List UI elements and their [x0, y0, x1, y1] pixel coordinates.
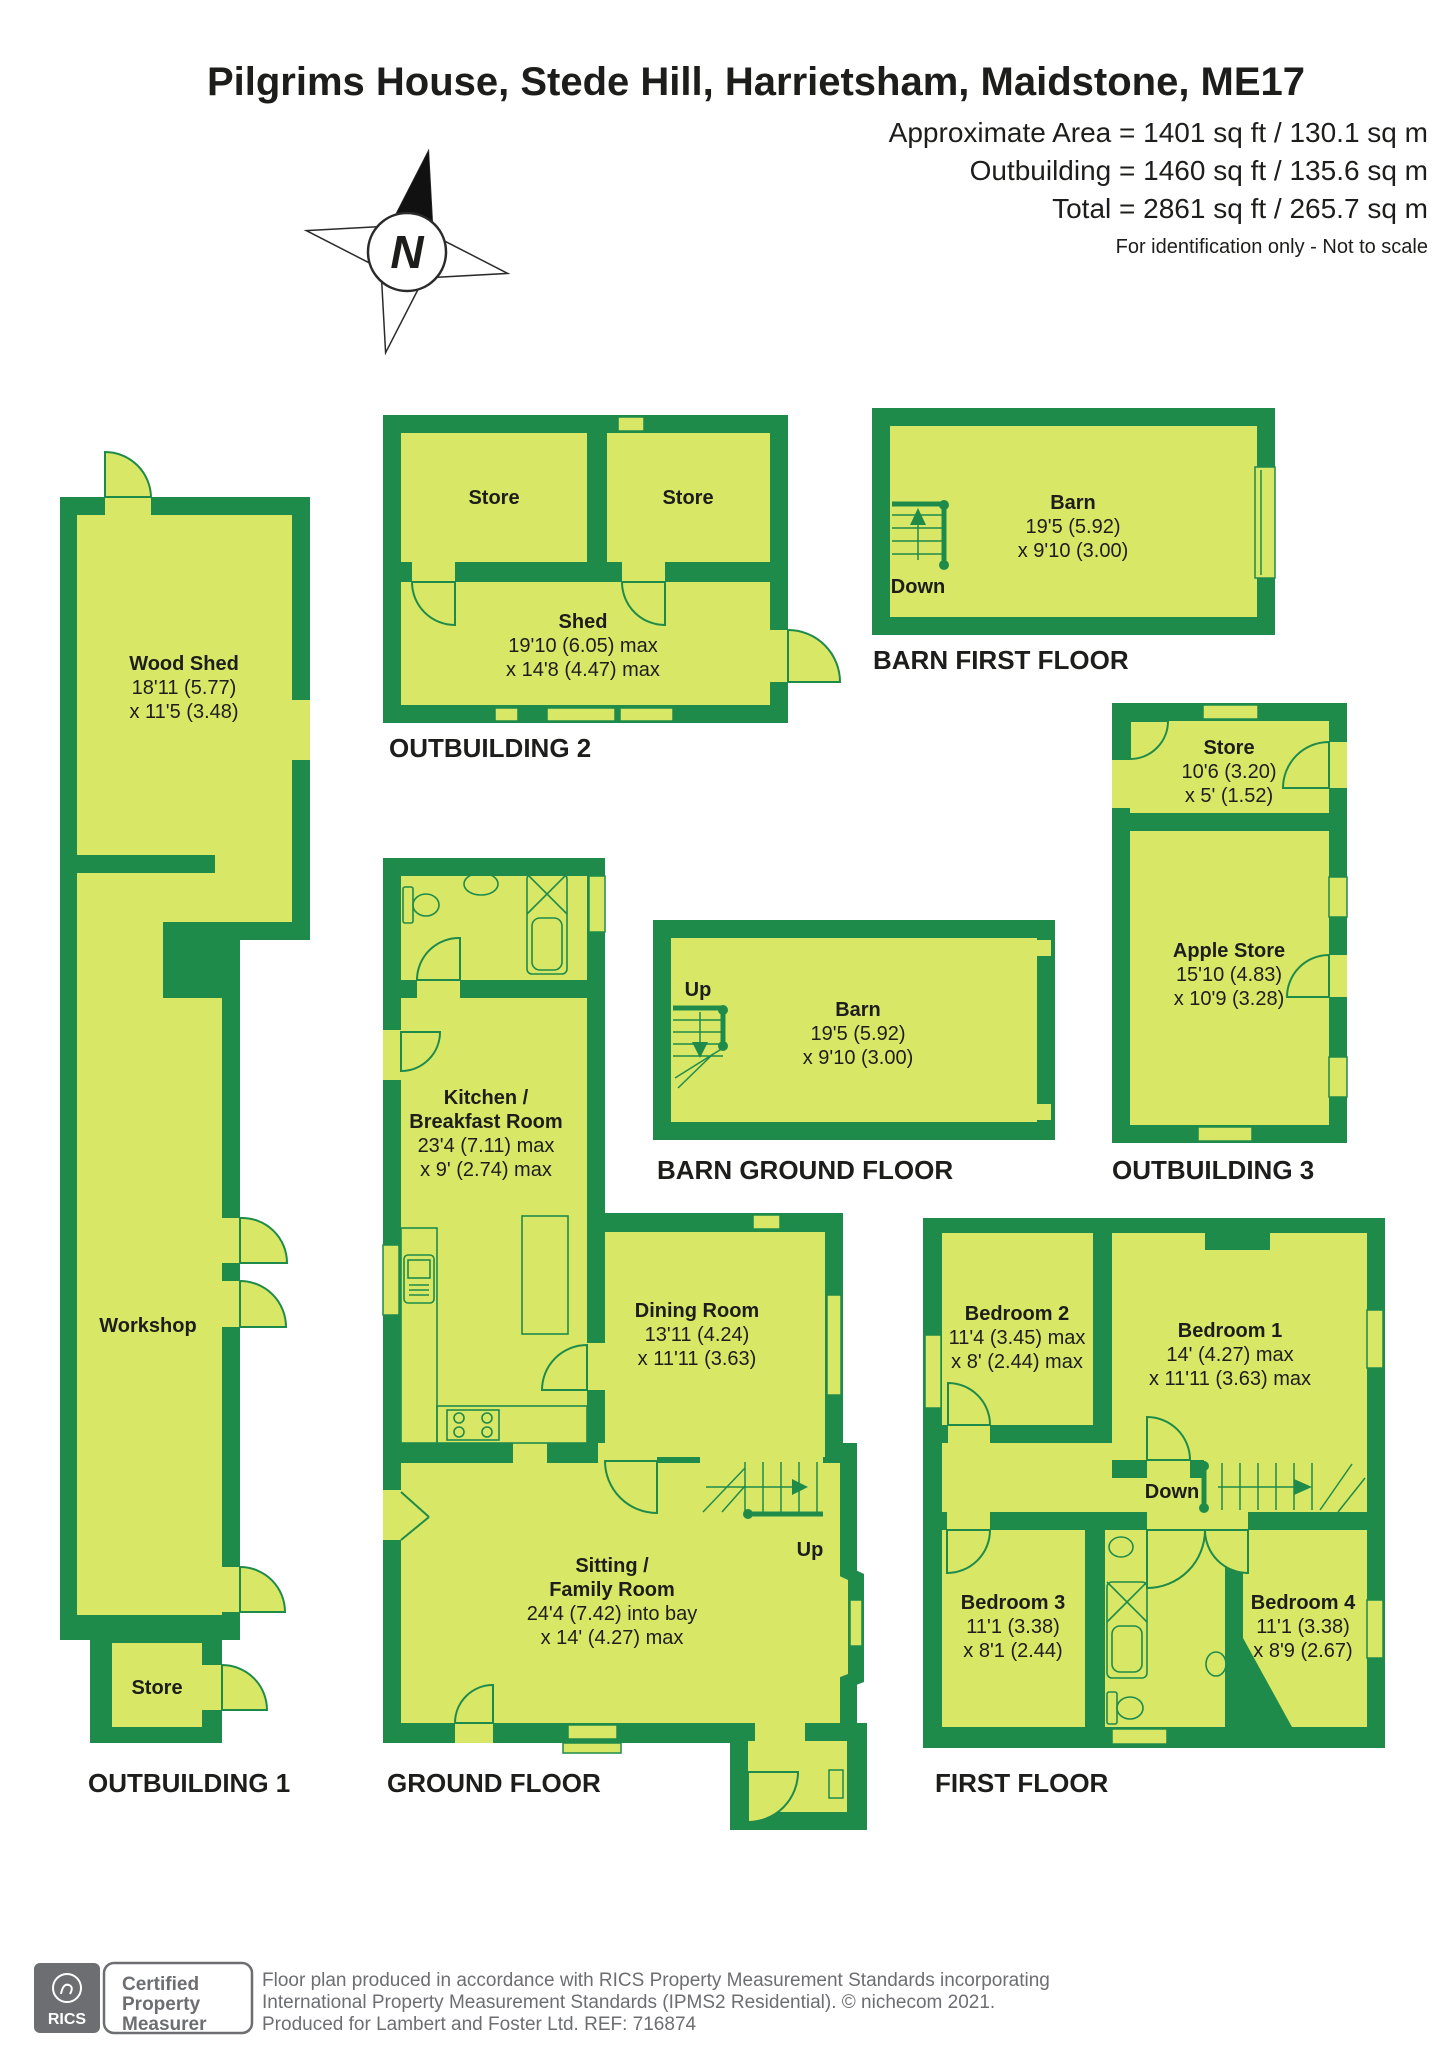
door-gap — [513, 1443, 547, 1463]
section-label-ground-floor: GROUND FLOOR — [387, 1768, 601, 1798]
total-area-line: Total = 2861 sq ft / 265.7 sq m — [1052, 193, 1428, 224]
rics-logo-text: RICS — [48, 2011, 87, 2028]
room-dims: 14' (4.27) max — [1166, 1344, 1293, 1366]
passage — [77, 922, 163, 998]
badge-line: Property — [122, 1994, 201, 2015]
door-arc — [222, 1665, 267, 1710]
door-gap — [383, 1030, 401, 1080]
room-dims: x 8'9 (2.67) — [1253, 1640, 1352, 1662]
door-gap — [1147, 1512, 1205, 1530]
wall-recess — [1037, 1104, 1051, 1120]
compass-letter: N — [390, 226, 424, 278]
door-gap — [202, 1665, 222, 1710]
outbuilding-2-plan: Store Store Shed 19'10 (6.05) max x 14'8… — [383, 415, 840, 763]
room-label: Store — [662, 487, 713, 509]
stairs-label: Down — [1145, 1481, 1199, 1503]
room-label: Store — [1203, 737, 1254, 759]
room-dims: x 9'10 (3.00) — [803, 1047, 914, 1069]
window — [1112, 1729, 1167, 1744]
section-label-outbuilding-3: OUTBUILDING 3 — [1112, 1155, 1314, 1185]
stairs-label: Up — [685, 979, 712, 1001]
door-gap — [383, 1490, 401, 1540]
room-label: Dining Room — [635, 1300, 759, 1322]
room-workshop — [77, 998, 222, 1615]
newel-post — [1199, 1503, 1209, 1513]
room-label: Barn — [835, 999, 881, 1021]
door-gap — [292, 700, 310, 760]
room-label: Wood Shed — [129, 653, 239, 675]
section-label-outbuilding-1: OUTBUILDING 1 — [88, 1768, 290, 1798]
floorplan-page: Pilgrims House, Stede Hill, Harrietsham,… — [0, 0, 1448, 2048]
room-label: Family Room — [549, 1579, 675, 1601]
door-gap — [587, 1343, 605, 1390]
window — [1203, 705, 1258, 719]
outbuilding-3-plan: Store 10'6 (3.20) x 5' (1.52) Apple Stor… — [1112, 703, 1347, 1185]
stairs-label: Up — [797, 1539, 824, 1561]
window — [495, 708, 518, 721]
room-dims: x 8'1 (2.44) — [963, 1640, 1062, 1662]
section-label-barn-ground: BARN GROUND FLOOR — [657, 1155, 953, 1185]
wall — [1112, 1460, 1147, 1478]
window — [618, 417, 644, 431]
room-dims: x 9' (2.74) max — [420, 1159, 552, 1181]
room-dims: 13'11 (4.24) — [645, 1324, 750, 1346]
door-arc — [105, 452, 151, 497]
door-arc — [240, 1281, 286, 1327]
window — [568, 1725, 617, 1739]
window — [1255, 467, 1275, 578]
room-dims: 23'4 (7.11) max — [418, 1135, 555, 1157]
footer-text-line: Floor plan produced in accordance with R… — [262, 1970, 1050, 1991]
door-gap — [948, 1425, 990, 1443]
room-dims: x 11'11 (3.63) — [638, 1348, 757, 1370]
room-label: Kitchen / — [444, 1087, 529, 1109]
window — [1367, 1600, 1383, 1658]
door-arc — [240, 1567, 285, 1612]
room-dims: x 8' (2.44) max — [951, 1351, 1083, 1373]
newel-post — [718, 1005, 728, 1015]
door-gap — [1205, 1512, 1248, 1530]
room-label: Bedroom 1 — [1178, 1320, 1282, 1342]
room-dims: 19'5 (5.92) — [1026, 516, 1121, 538]
bay-window-interior — [797, 1556, 848, 1692]
door-gap — [105, 497, 151, 515]
door-gap — [1329, 742, 1347, 788]
barn-ground-floor-plan: Up Barn 19'5 (5.92) x 9'10 (3.00) BARN G… — [653, 920, 1055, 1185]
room-dims: 11'1 (3.38) — [1256, 1616, 1350, 1638]
door-gap — [222, 1281, 240, 1327]
stairs-area — [700, 1443, 823, 1516]
door-gap — [412, 562, 455, 582]
entry-step — [563, 1743, 621, 1753]
newel-post — [939, 560, 949, 570]
newel-post — [1199, 1461, 1209, 1471]
window — [753, 1215, 780, 1229]
barn-first-floor-plan: Down Barn 19'5 (5.92) x 9'10 (3.00) BARN… — [872, 408, 1275, 675]
outbuilding-1-plan: Wood Shed 18'11 (5.77) x 11'5 (3.48) Wor… — [60, 452, 310, 1798]
door-gap — [1329, 955, 1347, 997]
door-gap — [1112, 760, 1130, 808]
footer-text-line: International Property Measurement Stand… — [262, 1992, 995, 2013]
door-gap — [622, 562, 665, 582]
passage — [77, 873, 292, 922]
chimney-breast — [1205, 1233, 1270, 1250]
window — [547, 708, 615, 721]
window — [1198, 1127, 1252, 1141]
room-dims: x 14'8 (4.47) max — [506, 659, 660, 681]
room-label: Workshop — [99, 1315, 196, 1337]
window — [829, 1770, 843, 1798]
window — [620, 708, 673, 721]
stairs-label: Down — [891, 576, 945, 598]
room-label: Sitting / — [575, 1555, 649, 1577]
section-label-outbuilding-2: OUTBUILDING 2 — [389, 733, 591, 763]
room-label: Bedroom 2 — [965, 1303, 1069, 1325]
door-gap — [222, 1218, 240, 1263]
first-floor-plan: Down Bedroom 2 11'4 (3.45) max x 8' (2.4… — [923, 1218, 1385, 1798]
badge-line: Measurer — [122, 2014, 207, 2035]
door-arc — [788, 630, 840, 682]
floorplan-canvas: Pilgrims House, Stede Hill, Harrietsham,… — [0, 0, 1448, 2048]
window — [925, 1335, 941, 1408]
badge-line: Certified — [122, 1974, 199, 1995]
room-label: Bedroom 3 — [961, 1592, 1065, 1614]
room-label: Breakfast Room — [409, 1111, 562, 1133]
room-dims: 15'10 (4.83) — [1176, 964, 1282, 986]
room-dims: x 11'5 (3.48) — [129, 701, 238, 723]
room-dims: x 14' (4.27) max — [541, 1627, 684, 1649]
disclaimer-text: For identification only - Not to scale — [1116, 236, 1428, 258]
newel-post — [939, 500, 949, 510]
room-label: Apple Store — [1173, 940, 1285, 962]
footer-text-line: Produced for Lambert and Foster Ltd. REF… — [262, 2014, 697, 2035]
approx-area-line: Approximate Area = 1401 sq ft / 130.1 sq… — [889, 117, 1428, 148]
newel-post — [743, 1509, 753, 1519]
room-dims: 19'5 (5.92) — [811, 1023, 906, 1045]
room-dims: x 9'10 (3.00) — [1018, 540, 1129, 562]
room-label: Shed — [559, 611, 608, 633]
door-gap — [222, 1567, 240, 1612]
window — [827, 1295, 841, 1395]
room-dims: 24'4 (7.42) into bay — [527, 1603, 698, 1625]
room-dims: 18'11 (5.77) — [132, 677, 237, 699]
room-dims: 11'1 (3.38) — [966, 1616, 1060, 1638]
window — [383, 1245, 399, 1315]
window — [850, 1600, 862, 1646]
section-label-barn-first: BARN FIRST FLOOR — [873, 645, 1129, 675]
section-label-first-floor: FIRST FLOOR — [935, 1768, 1109, 1798]
wall-recess — [1037, 940, 1051, 956]
window — [1367, 1310, 1383, 1368]
room-dims: 11'4 (3.45) max — [949, 1327, 1086, 1349]
door-gap — [455, 1723, 493, 1743]
room-dims: x 11'11 (3.63) max — [1149, 1368, 1311, 1390]
window — [1329, 877, 1347, 917]
page-title: Pilgrims House, Stede Hill, Harrietsham,… — [207, 60, 1305, 104]
door-gap — [417, 980, 460, 998]
room-label: Store — [131, 1677, 182, 1699]
room-dims: x 5' (1.52) — [1185, 785, 1273, 807]
window — [1329, 1057, 1347, 1097]
room-label: Barn — [1050, 492, 1096, 514]
window — [589, 876, 605, 932]
door-gap — [770, 630, 788, 682]
door-gap — [947, 1512, 990, 1530]
compass-north-icon: N — [306, 151, 507, 352]
outbuilding-area-line: Outbuilding = 1460 sq ft / 135.6 sq m — [970, 155, 1428, 186]
room-dims: 10'6 (3.20) — [1182, 761, 1277, 783]
door-gap — [755, 1723, 805, 1741]
room-label: Store — [468, 487, 519, 509]
room-dims: x 10'9 (3.28) — [1174, 988, 1285, 1010]
footer: RICS Certified Property Measurer Floor p… — [34, 1963, 1050, 2035]
room-dims: 19'10 (6.05) max — [508, 635, 657, 657]
door-arc — [240, 1218, 287, 1263]
room-label: Bedroom 4 — [1251, 1592, 1356, 1614]
